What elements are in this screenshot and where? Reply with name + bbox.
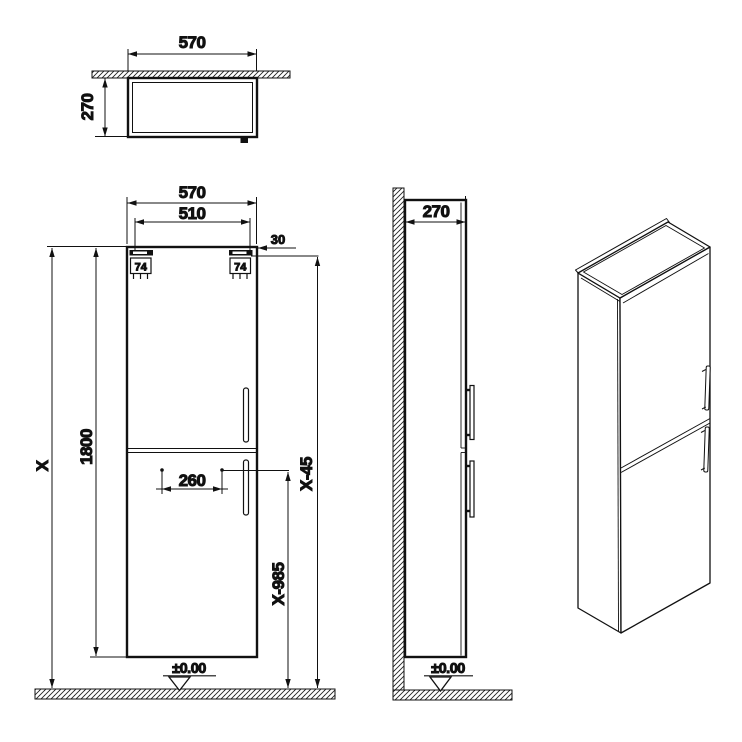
front-view-lower-handle-height-label: X-985 [269,563,288,606]
bracket-left-label: 74 [135,262,148,274]
front-view: 74 74 570 5 [33,183,335,699]
top-view-dim-width [128,49,257,71]
side-view-upper-handle [466,386,474,440]
front-view-handle-spacing-label: 260 [179,471,206,490]
top-view-cabinet-outline [128,78,257,137]
side-view-depth-label: 270 [423,202,450,221]
side-view-wall-hatch [393,188,404,690]
drawing-canvas: 570 270 74 74 [0,0,742,742]
top-view: 570 270 [78,33,290,143]
side-view-floor-level-label: ±0.00 [431,661,465,677]
front-view-cabinet-height-label: 1800 [77,429,96,465]
front-view-lower-handle [244,460,249,515]
front-view-ground-level-symbol [163,676,216,691]
top-view-handle-mark [241,137,249,143]
front-view-inner-width-label: 510 [179,204,206,223]
front-view-floor-hatch [35,689,335,699]
bracket-right-label: 74 [234,262,247,274]
side-view-floor-hatch [393,690,512,700]
front-view-floor-level-label: ±0.00 [172,661,206,677]
side-view-cabinet-outline [405,200,466,657]
top-view-dim-depth [95,78,128,137]
side-view-lower-handle [466,461,474,517]
front-view-edge-offset-label: 30 [271,232,285,247]
front-view-width-label: 570 [179,183,206,202]
front-view-upper-handle-height-label: X-45 [297,457,316,491]
front-view-overall-height-label: X [33,459,52,471]
top-view-width-label: 570 [179,33,206,52]
side-view: 270 ±0.00 [393,188,512,700]
side-view-ground-level-symbol [424,676,473,691]
iso-front-face [620,247,710,633]
front-view-dim-overall-height [47,247,127,689]
top-view-depth-label: 270 [78,94,97,121]
isometric-view [576,219,711,634]
front-view-upper-handle [244,388,249,442]
iso-left-face [578,273,621,633]
